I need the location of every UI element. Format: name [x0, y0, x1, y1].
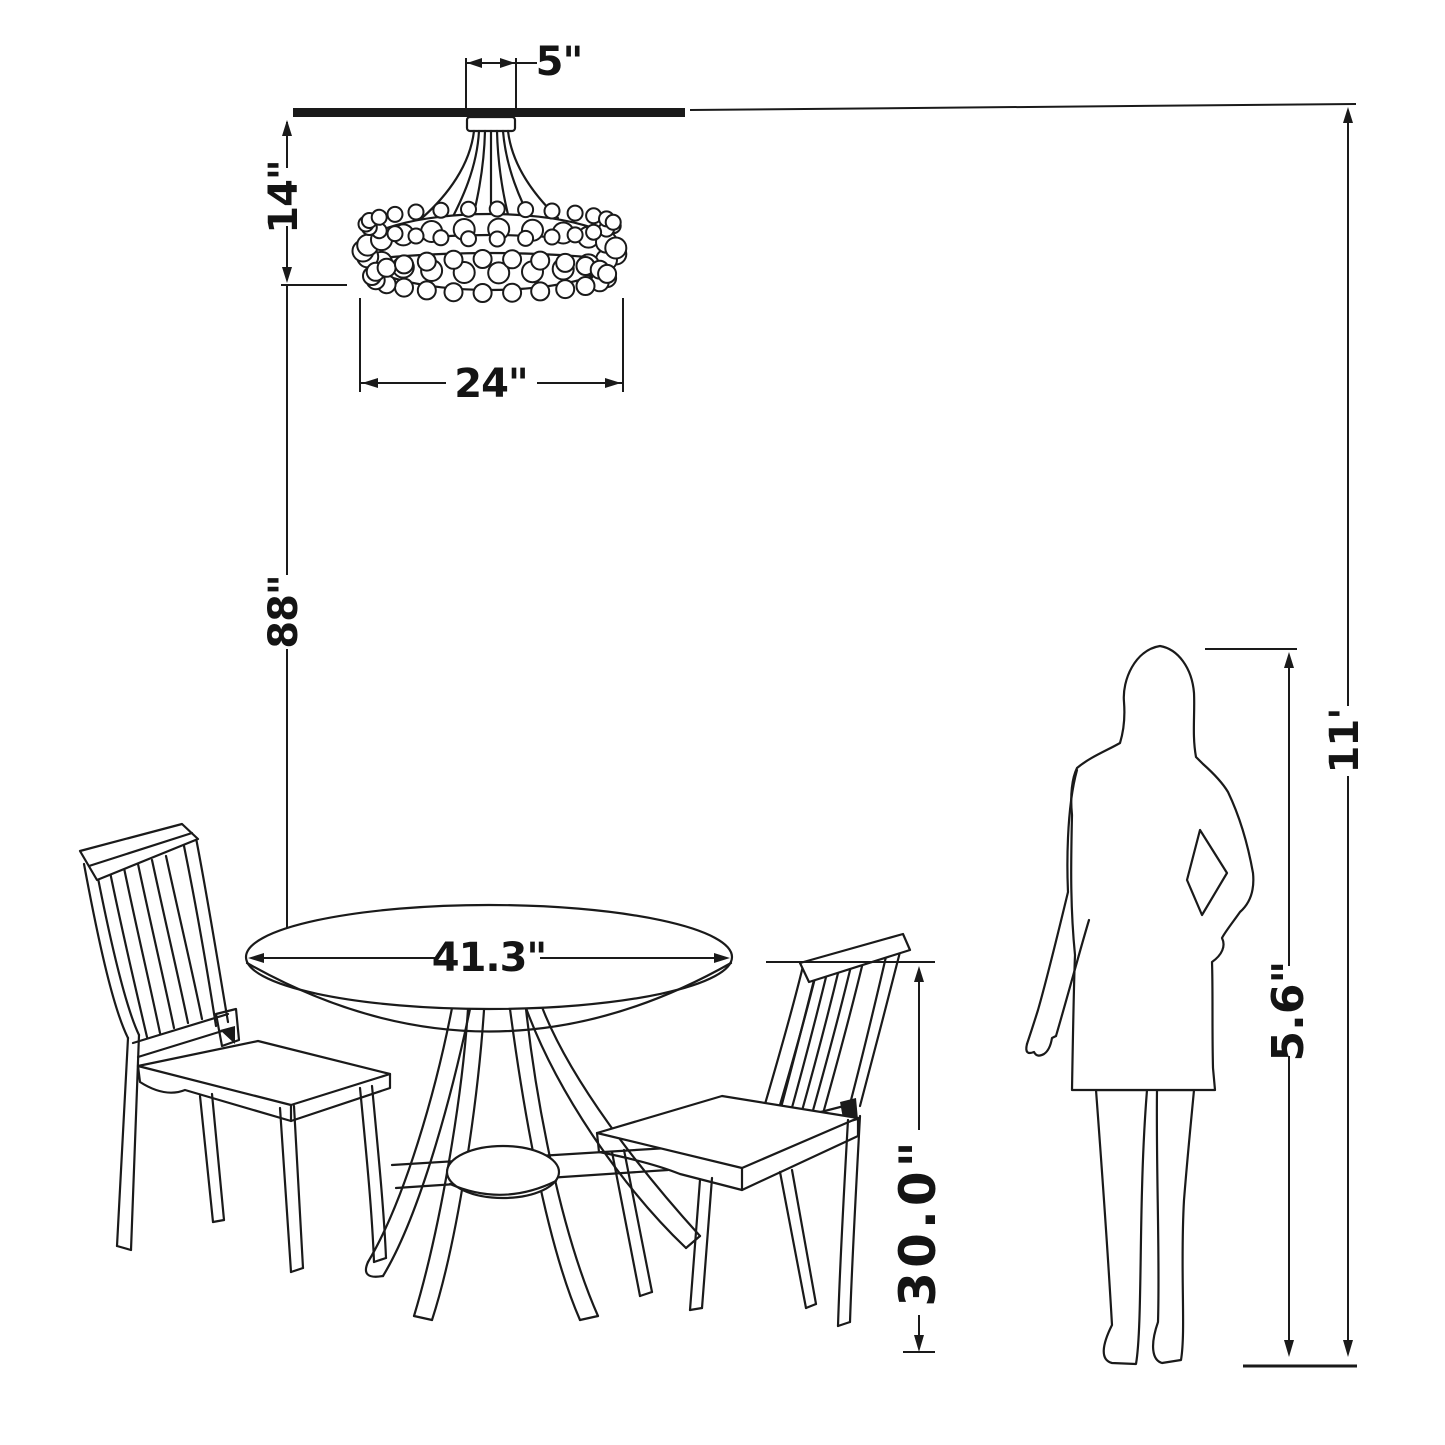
chair-right-seat [597, 1096, 858, 1168]
chair-left-seat [138, 1041, 390, 1105]
label-canopy-width: 5" [536, 42, 583, 82]
label-chandelier-diameter: 24" [454, 364, 528, 404]
label-chandelier-height: 14" [264, 160, 304, 234]
label-table-height: 30.0" [893, 1137, 943, 1306]
label-chandelier-to-table: 88" [264, 575, 304, 649]
ceiling-line [293, 104, 1356, 117]
chandelier-drawing [353, 117, 627, 302]
label-table-diameter: 41.3" [432, 938, 547, 978]
line-drawing [0, 0, 1445, 1445]
dim-canopy-width [466, 58, 537, 108]
label-person-height: 5.6" [1267, 961, 1311, 1062]
person-silhouette [1026, 646, 1253, 1364]
chair-left-drawing [80, 824, 390, 1272]
dimension-diagram: 5" 14" 24" 88" 41.3" 30.0" 5.6" 11' [0, 0, 1445, 1445]
label-ceiling-height: 11' [1325, 709, 1365, 774]
